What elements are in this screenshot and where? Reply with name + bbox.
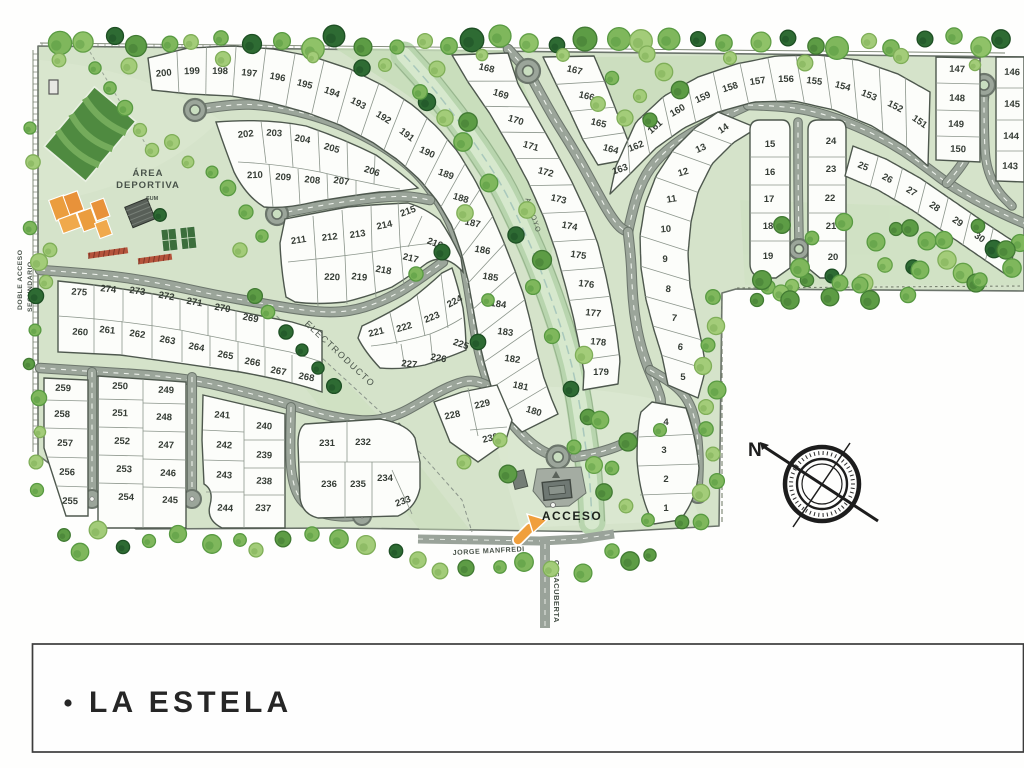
svg-text:255: 255 xyxy=(62,496,79,508)
svg-text:259: 259 xyxy=(55,383,71,395)
svg-text:DEPORTIVA: DEPORTIVA xyxy=(116,180,180,191)
svg-text:275: 275 xyxy=(71,286,88,298)
svg-text:SECUNDARIO: SECUNDARIO xyxy=(27,261,34,312)
svg-text:146: 146 xyxy=(1004,67,1020,79)
svg-text:178: 178 xyxy=(590,336,607,348)
svg-text:143: 143 xyxy=(1002,161,1018,173)
svg-text:19: 19 xyxy=(763,251,774,262)
svg-text:274: 274 xyxy=(100,283,118,296)
svg-text:239: 239 xyxy=(256,449,273,461)
svg-text:144: 144 xyxy=(1003,131,1020,143)
svg-text:157: 157 xyxy=(749,75,766,88)
svg-text:155: 155 xyxy=(806,75,824,88)
svg-text:235: 235 xyxy=(350,479,367,490)
svg-text:246: 246 xyxy=(160,468,176,480)
svg-text:227: 227 xyxy=(401,358,418,371)
svg-text:199: 199 xyxy=(184,66,200,78)
svg-text:210: 210 xyxy=(247,170,263,182)
svg-text:DOBLE ACCESO: DOBLE ACCESO xyxy=(17,249,24,310)
svg-text:244: 244 xyxy=(217,502,234,514)
svg-text:208: 208 xyxy=(304,174,321,187)
svg-text:147: 147 xyxy=(949,64,965,76)
svg-text:145: 145 xyxy=(1004,99,1021,111)
svg-text:234: 234 xyxy=(377,473,394,484)
svg-text:ÁREA: ÁREA xyxy=(133,168,164,179)
svg-text:8: 8 xyxy=(665,284,671,295)
svg-text:203: 203 xyxy=(266,127,283,139)
svg-text:247: 247 xyxy=(158,440,174,452)
svg-text:207: 207 xyxy=(333,175,350,188)
svg-text:202: 202 xyxy=(237,128,254,141)
svg-text:182: 182 xyxy=(504,353,521,366)
svg-text:260: 260 xyxy=(72,326,89,338)
svg-text:245: 245 xyxy=(162,495,179,507)
svg-text:15: 15 xyxy=(765,139,776,150)
svg-text:257: 257 xyxy=(57,438,73,450)
svg-text:150: 150 xyxy=(950,144,966,156)
svg-text:23: 23 xyxy=(826,164,837,175)
svg-text:5: 5 xyxy=(680,372,686,383)
svg-text:22: 22 xyxy=(825,193,836,204)
svg-text:156: 156 xyxy=(778,74,794,85)
svg-text:17: 17 xyxy=(764,194,775,205)
svg-text:251: 251 xyxy=(112,408,129,420)
svg-text:212: 212 xyxy=(321,231,338,244)
svg-text:10: 10 xyxy=(660,224,671,236)
svg-text:213: 213 xyxy=(349,228,366,241)
svg-text:256: 256 xyxy=(59,467,75,479)
svg-text:242: 242 xyxy=(216,439,233,451)
svg-text:237: 237 xyxy=(255,502,272,514)
svg-text:3: 3 xyxy=(661,445,666,456)
svg-text:240: 240 xyxy=(256,420,273,432)
svg-text:183: 183 xyxy=(497,326,514,339)
svg-text:149: 149 xyxy=(948,119,964,131)
svg-text:ACCESO: ACCESO xyxy=(542,509,602,523)
svg-text:231: 231 xyxy=(319,438,336,449)
svg-text:248: 248 xyxy=(156,412,172,424)
svg-text:198: 198 xyxy=(212,66,228,77)
svg-text:200: 200 xyxy=(155,67,172,79)
svg-text:177: 177 xyxy=(585,307,602,320)
svg-text:238: 238 xyxy=(256,475,273,487)
svg-text:273: 273 xyxy=(129,285,146,298)
svg-text:236: 236 xyxy=(321,479,337,490)
svg-text:176: 176 xyxy=(578,278,595,291)
svg-text:252: 252 xyxy=(114,436,130,448)
svg-text:209: 209 xyxy=(275,171,292,183)
svg-text:1: 1 xyxy=(663,503,669,514)
svg-text:20: 20 xyxy=(828,252,839,263)
svg-text:16: 16 xyxy=(765,167,776,178)
svg-text:258: 258 xyxy=(54,409,70,421)
svg-text:24: 24 xyxy=(826,136,837,147)
svg-text:249: 249 xyxy=(158,385,174,397)
svg-text:N: N xyxy=(748,440,762,461)
svg-text:9: 9 xyxy=(662,254,667,265)
svg-text:179: 179 xyxy=(593,367,609,378)
svg-text:220: 220 xyxy=(324,272,340,284)
svg-text:253: 253 xyxy=(116,464,132,476)
svg-text:243: 243 xyxy=(216,469,233,481)
svg-text:SUM: SUM xyxy=(146,196,159,202)
svg-text:232: 232 xyxy=(355,437,371,448)
svg-text:219: 219 xyxy=(351,271,368,284)
svg-text:241: 241 xyxy=(214,409,231,421)
svg-text:18: 18 xyxy=(763,221,774,232)
svg-text:197: 197 xyxy=(241,67,258,80)
svg-text:250: 250 xyxy=(112,381,128,393)
svg-text:LA ESTELA: LA ESTELA xyxy=(89,686,292,719)
svg-text:211: 211 xyxy=(290,234,307,247)
svg-text:2: 2 xyxy=(663,474,668,485)
svg-text:254: 254 xyxy=(118,492,135,504)
svg-text:148: 148 xyxy=(949,93,965,105)
svg-text:261: 261 xyxy=(99,324,117,337)
svg-text:262: 262 xyxy=(129,328,146,341)
